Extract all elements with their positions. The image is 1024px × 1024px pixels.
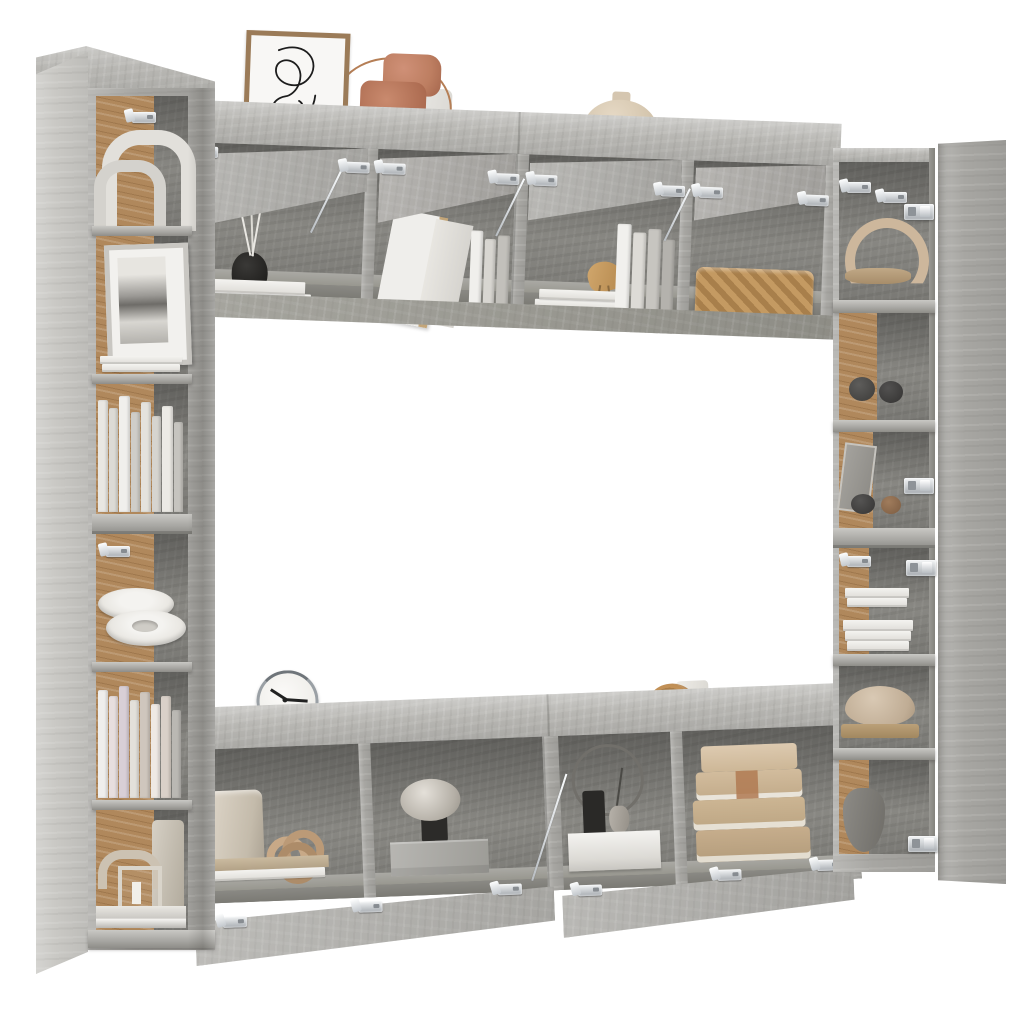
hinge-icon bbox=[805, 195, 829, 207]
linen-book-stack bbox=[691, 742, 814, 866]
book-spine bbox=[162, 406, 173, 512]
print-stack bbox=[102, 364, 180, 372]
compartment bbox=[96, 236, 188, 374]
white-book-stack bbox=[843, 620, 913, 631]
white-book-stack bbox=[845, 588, 909, 598]
book-spine bbox=[130, 700, 139, 798]
clay-sphere bbox=[881, 496, 901, 514]
compartment bbox=[96, 384, 188, 514]
strap-bowl bbox=[845, 218, 929, 304]
book-spine bbox=[161, 696, 171, 798]
hinge-icon bbox=[847, 182, 871, 193]
book-spine bbox=[109, 696, 118, 798]
right-cabinet-bottom bbox=[833, 854, 935, 872]
dark-bowl bbox=[849, 377, 875, 401]
compartment bbox=[839, 162, 929, 300]
mushroom-lamp bbox=[398, 778, 466, 846]
compartment bbox=[96, 672, 188, 800]
dark-bowl bbox=[879, 381, 903, 403]
left-tall-cabinets bbox=[0, 0, 240, 1024]
hinge-icon bbox=[699, 187, 723, 199]
book-spine bbox=[151, 704, 160, 798]
shelf bbox=[92, 800, 192, 810]
shelf bbox=[92, 226, 192, 236]
compartment bbox=[96, 810, 188, 930]
dark-bowl bbox=[851, 494, 875, 514]
hinge-icon bbox=[495, 173, 519, 185]
linen-pouf bbox=[845, 686, 915, 726]
photo bbox=[117, 256, 168, 344]
door-hinge-icon bbox=[904, 478, 934, 494]
shelf bbox=[92, 374, 192, 384]
product-photo bbox=[0, 0, 1024, 1024]
book-spine bbox=[119, 686, 129, 798]
gift-box bbox=[390, 839, 489, 877]
compartment bbox=[96, 534, 188, 662]
book-spine bbox=[131, 412, 140, 512]
lamp-shade bbox=[400, 778, 462, 822]
shelf-double bbox=[92, 514, 192, 534]
hinge-icon bbox=[498, 883, 522, 895]
shelf bbox=[833, 420, 935, 432]
book-spine bbox=[119, 396, 130, 512]
hinge-icon bbox=[533, 175, 557, 187]
linen-book bbox=[693, 797, 806, 831]
linen-book bbox=[701, 743, 798, 773]
door-hinge-icon bbox=[904, 204, 934, 220]
compartment bbox=[96, 96, 188, 226]
open-cabinet-door bbox=[938, 140, 1006, 884]
compartment bbox=[839, 666, 929, 748]
door-hinge-icon bbox=[906, 560, 936, 576]
right-shelf-cabinet bbox=[833, 148, 935, 872]
hinge-icon bbox=[847, 556, 871, 567]
book-spine bbox=[98, 400, 108, 512]
shelf bbox=[92, 662, 192, 672]
print-stack bbox=[100, 356, 182, 364]
storage-tray bbox=[96, 906, 186, 928]
shelf bbox=[833, 300, 935, 313]
hinge-icon bbox=[578, 884, 602, 896]
shelf bbox=[833, 654, 935, 666]
compartment bbox=[839, 313, 929, 420]
book-spine bbox=[141, 402, 151, 512]
hinge-icon bbox=[381, 163, 405, 175]
right-cabinet-top-face bbox=[833, 148, 935, 162]
linen-book bbox=[696, 826, 811, 862]
book-spine bbox=[98, 690, 108, 798]
arch-sculpture bbox=[94, 160, 166, 230]
white-riser-box bbox=[568, 830, 661, 872]
hinge-icon bbox=[717, 869, 741, 881]
book-spine bbox=[172, 710, 181, 798]
cork-back-panel bbox=[839, 313, 877, 420]
top-wall-cabinets bbox=[184, 100, 841, 340]
white-book-stack bbox=[847, 641, 909, 651]
door-hinge-icon bbox=[908, 836, 938, 852]
pastel-books-row bbox=[98, 686, 186, 798]
black-cylinder-vase bbox=[582, 790, 606, 835]
platter-well bbox=[132, 620, 158, 632]
shelf bbox=[833, 748, 935, 760]
book-spine bbox=[174, 422, 183, 512]
hinge-icon bbox=[661, 185, 685, 197]
book-spine bbox=[140, 692, 150, 798]
book-spine bbox=[152, 416, 161, 512]
white-book-stack bbox=[847, 598, 907, 607]
framed-photo bbox=[104, 243, 192, 368]
white-books-row bbox=[98, 396, 186, 512]
hinge-icon bbox=[345, 162, 369, 174]
right-cabinet-edge bbox=[929, 148, 935, 872]
shelf-double bbox=[833, 528, 935, 548]
hinge-icon bbox=[358, 901, 382, 913]
left-cabinet-front bbox=[88, 88, 215, 950]
white-book-stack bbox=[845, 631, 911, 641]
pouf-tray bbox=[841, 724, 919, 738]
left-cabinet-side-panel bbox=[36, 52, 88, 974]
left-cabinet-right-edge bbox=[188, 88, 215, 950]
bracket-icon bbox=[132, 112, 156, 123]
strap-bowl-base bbox=[845, 268, 911, 284]
bracket-icon bbox=[106, 546, 130, 557]
book-spine bbox=[109, 408, 118, 512]
tv-benches bbox=[192, 717, 865, 982]
book-strap bbox=[736, 770, 759, 799]
hinge-icon bbox=[883, 192, 907, 203]
candle bbox=[132, 882, 141, 904]
